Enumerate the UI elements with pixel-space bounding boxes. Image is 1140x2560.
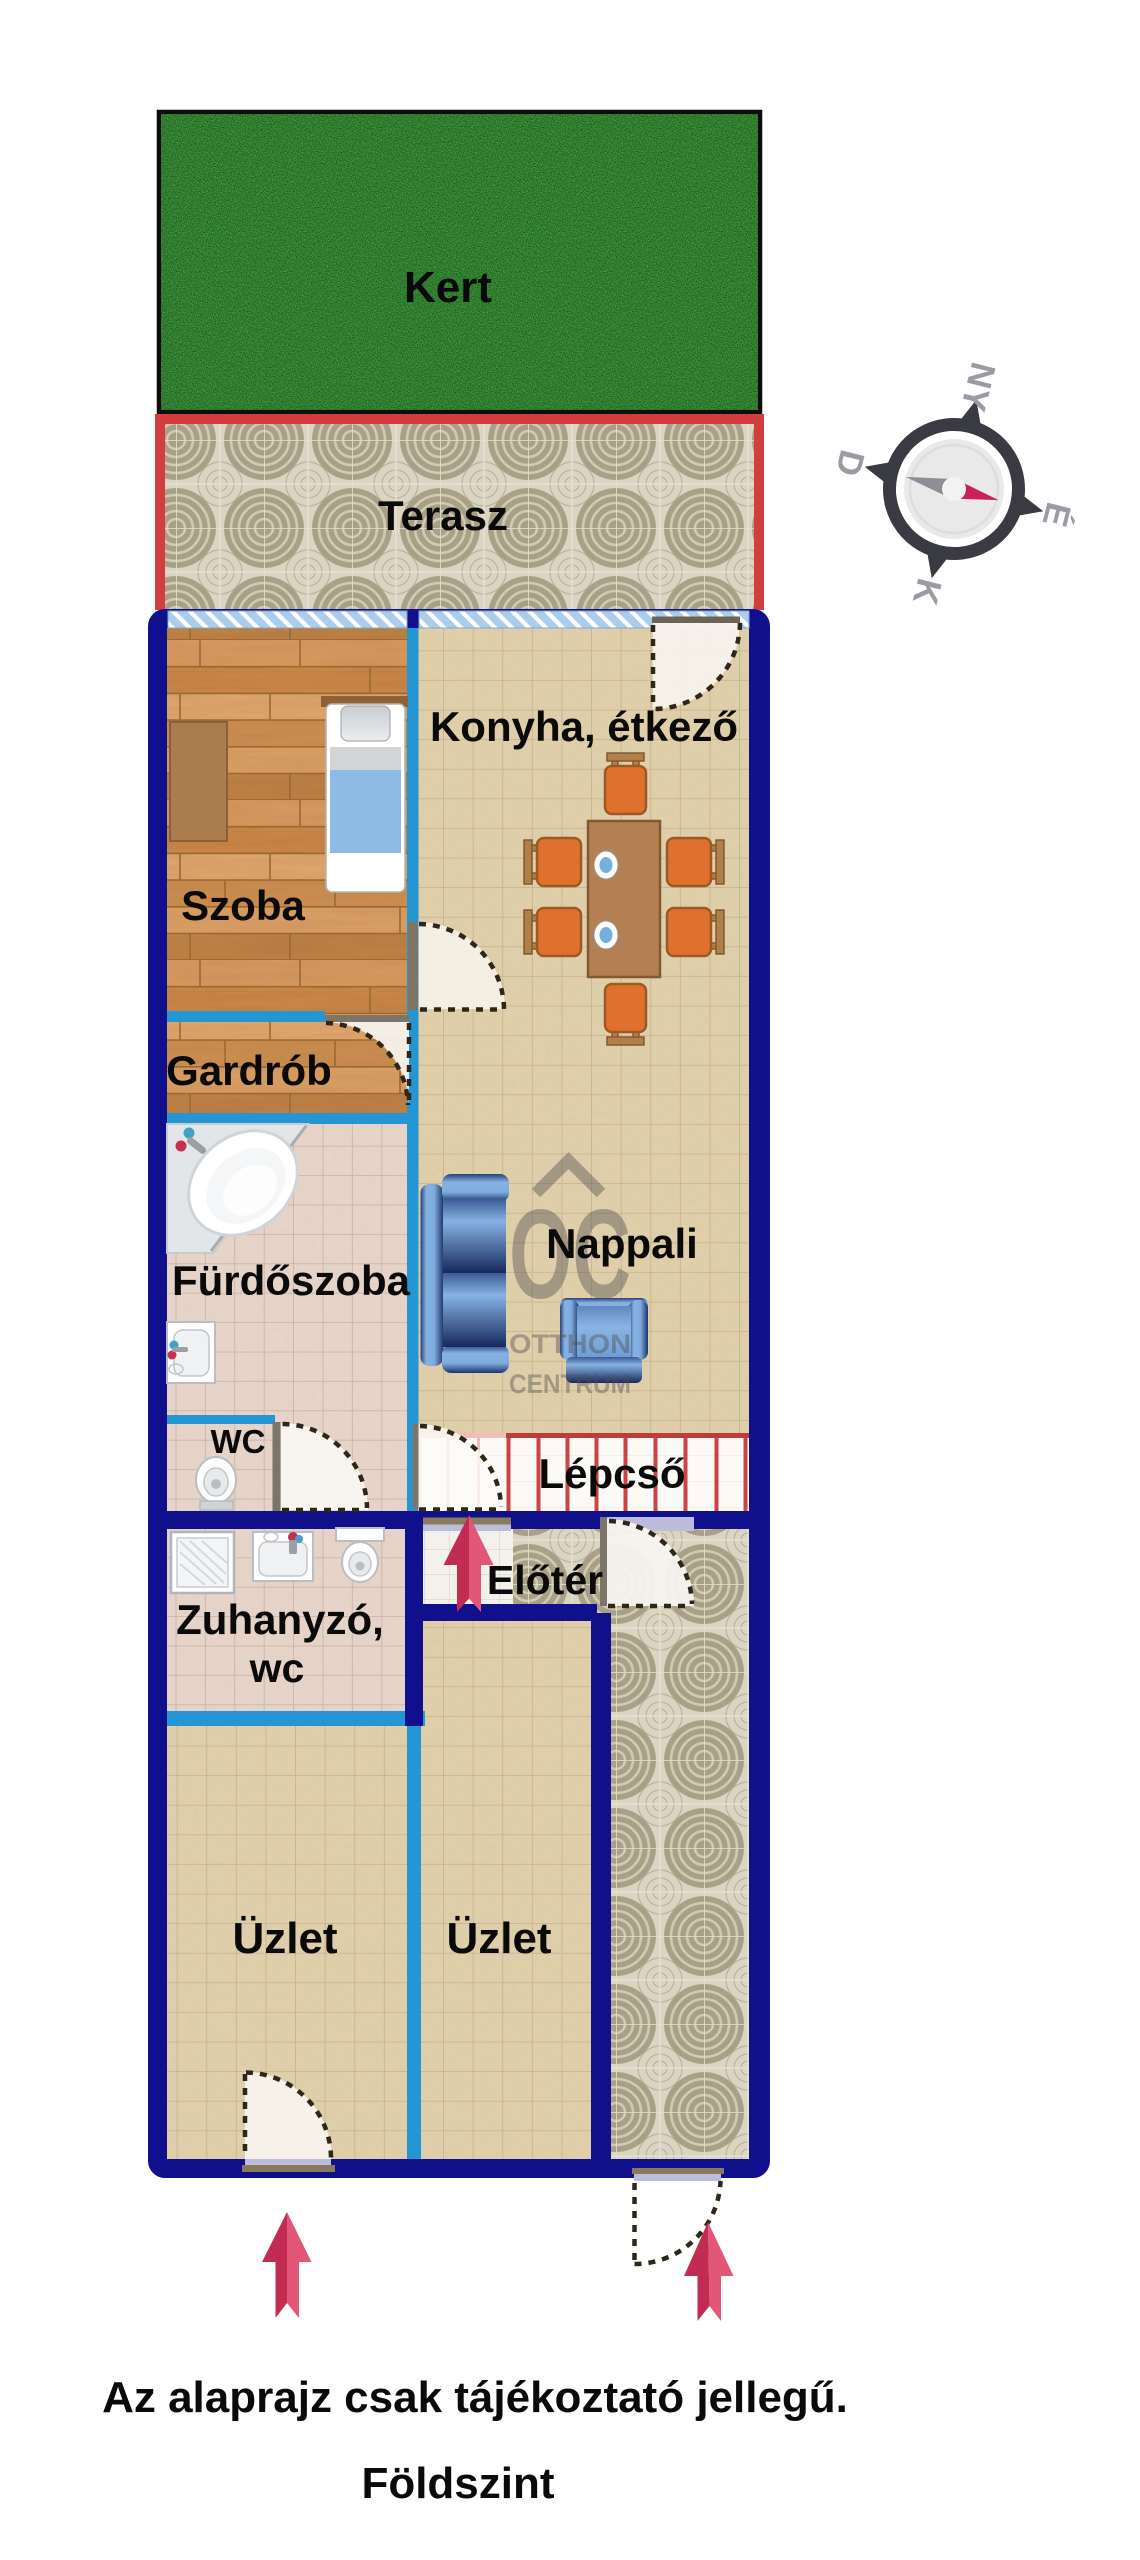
svg-text:Előtér: Előtér	[487, 1557, 603, 1603]
svg-text:CENTRUM: CENTRUM	[509, 1369, 631, 1399]
svg-text:Kert: Kert	[404, 263, 492, 312]
svg-text:Szoba: Szoba	[181, 882, 305, 929]
svg-text:Terasz: Terasz	[378, 492, 508, 539]
svg-text:Gardrób: Gardrób	[166, 1047, 332, 1094]
svg-text:Konyha, étkező: Konyha, étkező	[430, 703, 738, 750]
svg-text:Zuhanyzó,: Zuhanyzó,	[176, 1596, 384, 1643]
svg-text:Üzlet: Üzlet	[232, 1914, 337, 1963]
svg-text:OTTHON: OTTHON	[509, 1329, 631, 1359]
svg-text:Nappali: Nappali	[546, 1220, 698, 1267]
svg-text:Földszint: Földszint	[361, 2459, 554, 2508]
svg-text:Lépcső: Lépcső	[538, 1450, 685, 1497]
svg-text:wc: wc	[249, 1645, 305, 1691]
svg-text:WC: WC	[211, 1423, 266, 1460]
svg-text:Fürdőszoba: Fürdőszoba	[172, 1257, 411, 1304]
svg-text:Az alaprajz csak tájékoztató j: Az alaprajz csak tájékoztató jellegű.	[102, 2373, 848, 2422]
svg-text:Üzlet: Üzlet	[446, 1914, 551, 1963]
